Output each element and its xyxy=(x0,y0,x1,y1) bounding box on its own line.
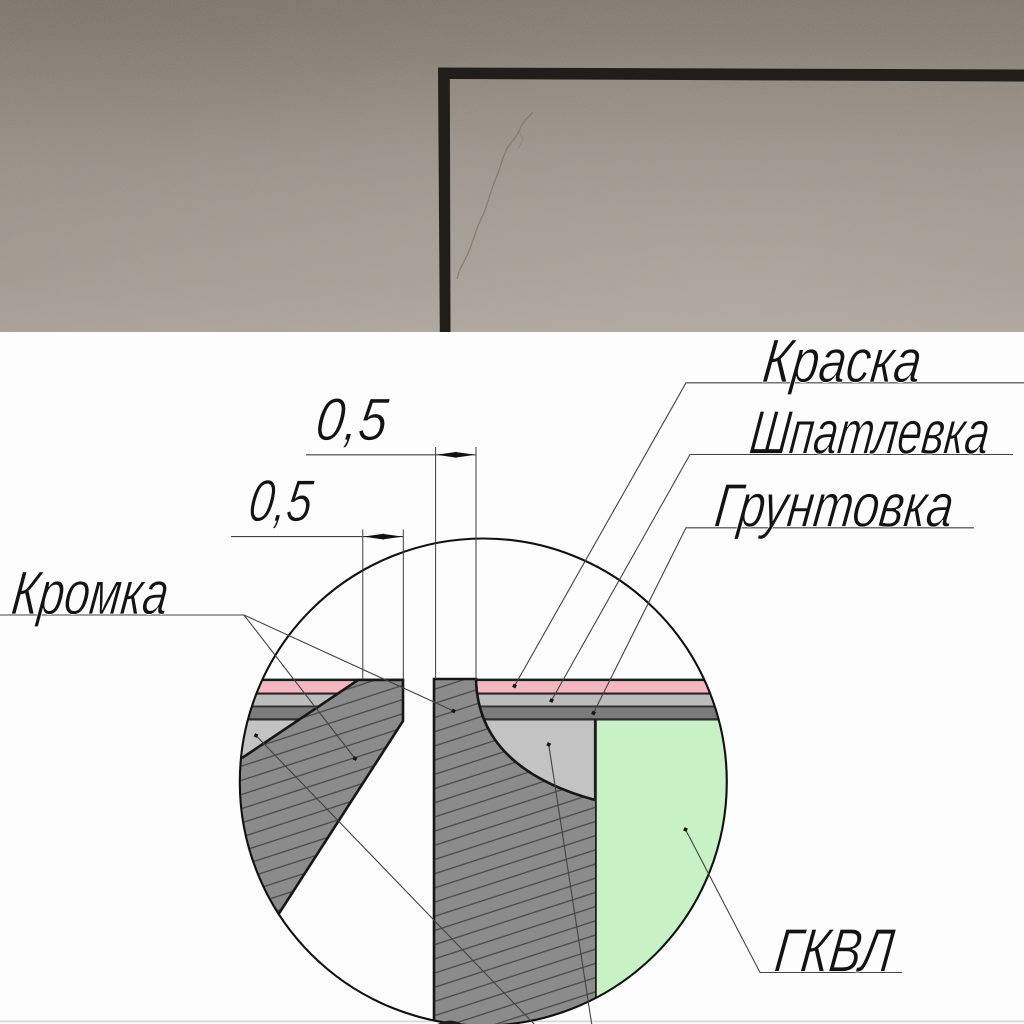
svg-text:ГКВЛ: ГКВЛ xyxy=(771,917,898,986)
svg-text:Краска: Краска xyxy=(759,327,925,396)
svg-text:Шпатлевка: Шпатлевка xyxy=(746,399,993,468)
svg-text:Грунтовка: Грунтовка xyxy=(711,472,957,541)
svg-text:Кромка: Кромка xyxy=(8,559,172,628)
svg-text:0,5: 0,5 xyxy=(312,385,392,453)
svg-text:0,5: 0,5 xyxy=(245,467,317,534)
